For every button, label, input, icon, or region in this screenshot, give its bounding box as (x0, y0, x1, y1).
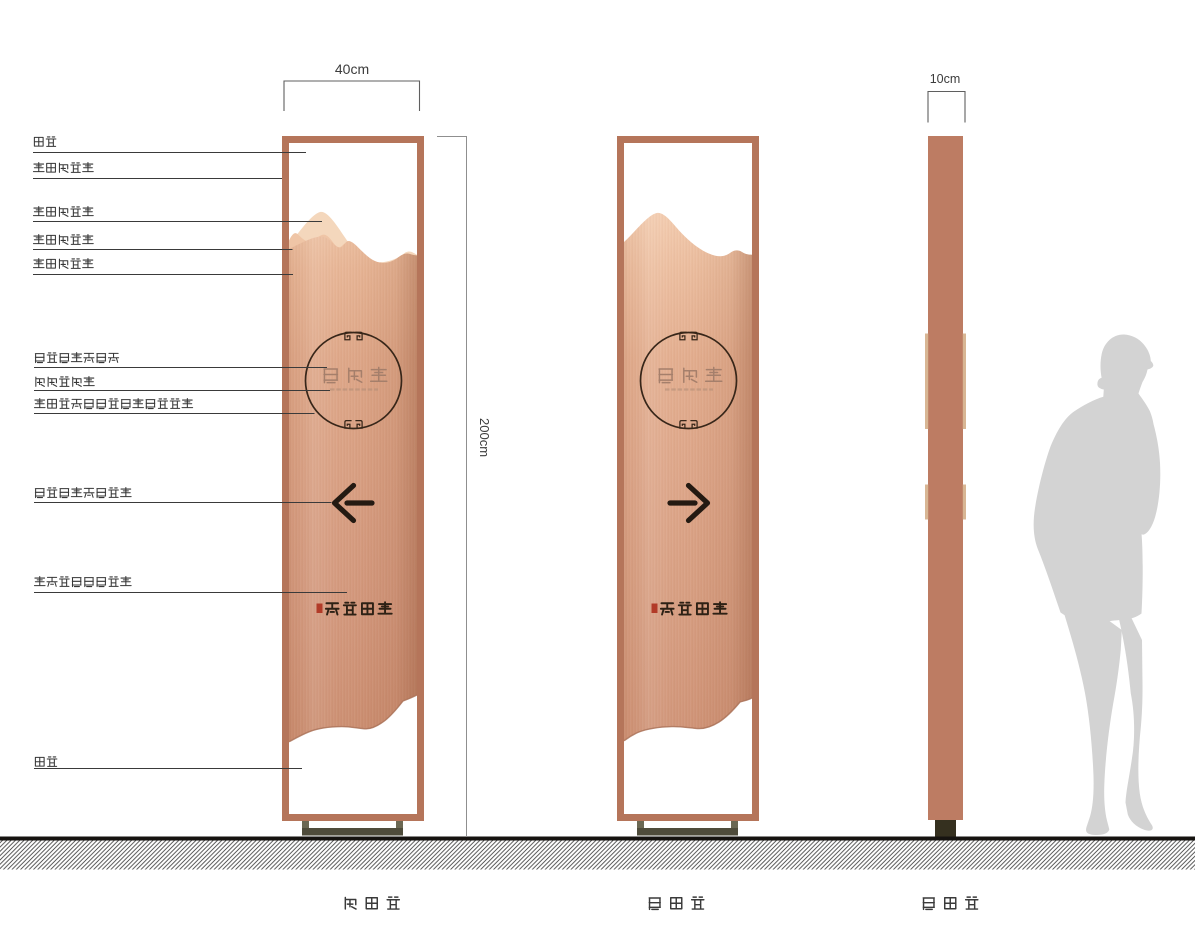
svg-text:40cm: 40cm (335, 61, 369, 77)
svg-text:200cm: 200cm (477, 418, 492, 457)
svg-text:10cm: 10cm (930, 72, 961, 86)
